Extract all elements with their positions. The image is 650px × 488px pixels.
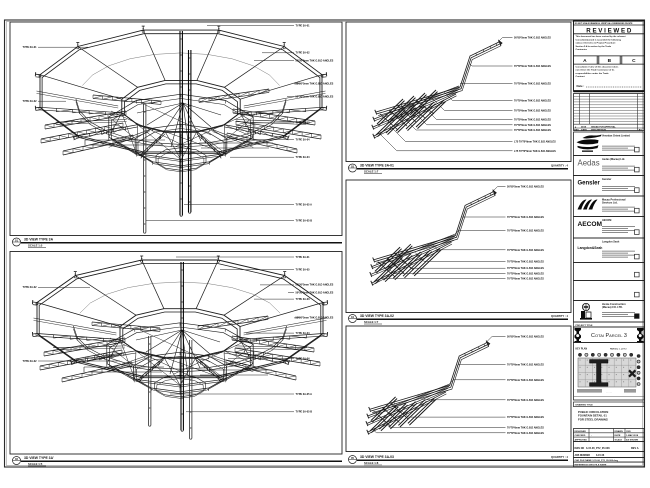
svg-text:50*50*5mm THK G.B.D ANGLES: 50*50*5mm THK G.B.D ANGLES bbox=[296, 95, 334, 98]
svg-text:R E V I E W E D: R E V I E W E D bbox=[586, 27, 632, 34]
svg-text:FOR STEEL DRAWING: FOR STEEL DRAWING bbox=[578, 417, 608, 421]
svg-text:TYPE 3A-01: TYPE 3A-01 bbox=[296, 256, 311, 259]
svg-text:KEY PLAN: KEY PLAN bbox=[576, 348, 588, 351]
svg-text:Section 5.4 for action by the: Section 5.4 for action by the Trade bbox=[576, 45, 612, 48]
svg-text:This document has been revised: This document has been revised by the re… bbox=[576, 35, 626, 38]
svg-text:70*70*6mm THK G.B.D ANGLES: 70*70*6mm THK G.B.D ANGLES bbox=[507, 399, 544, 402]
svg-text:BY: BY bbox=[639, 130, 643, 132]
svg-text:APPROVED: APPROVED bbox=[575, 438, 588, 441]
svg-text:TYPE 3A-04: TYPE 3A-04 bbox=[296, 138, 311, 141]
svg-text:Langdon Seah: Langdon Seah bbox=[602, 241, 620, 244]
svg-text:Contractor.: Contractor. bbox=[576, 48, 588, 51]
svg-text:Consultant review of this docu: Consultant review of this document does bbox=[576, 66, 620, 69]
svg-text:status referred to in Project: status referred to in Project Procedure bbox=[576, 42, 617, 45]
svg-text:50*50*5mm THK G.B.D ANGLES: 50*50*5mm THK G.B.D ANGLES bbox=[296, 284, 334, 287]
svg-text:3D VIEW TYPE 3A-02: 3D VIEW TYPE 3A-02 bbox=[360, 314, 394, 318]
svg-text:03: 03 bbox=[351, 164, 354, 168]
svg-text:50*50*5mm THK G.B.D ANGLES: 50*50*5mm THK G.B.D ANGLES bbox=[296, 83, 334, 86]
svg-text:04: 04 bbox=[351, 315, 354, 319]
svg-text:70*70*6mm THK G.B.D ANGLES: 70*70*6mm THK G.B.D ANGLES bbox=[507, 216, 544, 219]
svg-text:TYPE 3A-05: TYPE 3A-05 bbox=[296, 269, 311, 272]
svg-text:CHECKED: CHECKED bbox=[575, 435, 586, 437]
svg-text:50*50*5mm THK G.B.D ANGLES: 50*50*5mm THK G.B.D ANGLES bbox=[507, 335, 544, 338]
svg-text:01: 01 bbox=[15, 238, 18, 242]
svg-text:1-MAY-2018: 1-MAY-2018 bbox=[626, 434, 639, 437]
svg-text:Services Ltd.: Services Ltd. bbox=[602, 202, 618, 205]
svg-text:(Macau) CO. LTD.: (Macau) CO. LTD. bbox=[602, 306, 623, 309]
svg-text:3D VIEW TYPE 3A-03: 3D VIEW TYPE 3A-03 bbox=[360, 455, 394, 459]
svg-text:not relieve the Trade Contract: not relieve the Trade Contractor of its bbox=[576, 69, 616, 72]
svg-text:REFERENCE DWG FILE NAME: REFERENCE DWG FILE NAME bbox=[575, 464, 607, 467]
svg-text:C: C bbox=[632, 58, 636, 64]
svg-text:Langdon&Seah: Langdon&Seah bbox=[578, 246, 603, 250]
svg-text:70*70*6mm THK G.B.D ANGLES: 70*70*6mm THK G.B.D ANGLES bbox=[514, 129, 551, 132]
svg-text:50*50*5mm THK G.B.D ANGLES: 50*50*5mm THK G.B.D ANGLES bbox=[296, 60, 334, 63]
svg-text:QUANTITY : 4: QUANTITY : 4 bbox=[551, 455, 569, 459]
svg-text:. . . . .: . . . . . bbox=[606, 391, 611, 393]
svg-text:05: 05 bbox=[351, 456, 354, 460]
svg-text:SCALE: SCALE bbox=[615, 438, 623, 441]
svg-text:L75 70*70*6mm THK G.B.D ANGLES: L75 70*70*6mm THK G.B.D ANGLES bbox=[514, 140, 556, 143]
svg-text:70*70*6mm THK G.B.D ANGLES: 70*70*6mm THK G.B.D ANGLES bbox=[507, 267, 544, 270]
svg-text:TYPE 3A-01: TYPE 3A-01 bbox=[296, 24, 311, 27]
svg-text:PARCEL 1, LOT 2: PARCEL 1, LOT 2 bbox=[610, 348, 627, 351]
svg-text:3-15-06: 3-15-06 bbox=[596, 454, 605, 457]
svg-text:70*70*6mm THK G.B.D ANGLES: 70*70*6mm THK G.B.D ANGLES bbox=[507, 278, 544, 281]
svg-text:70*70*6mm THK G.B.D ANGLES: 70*70*6mm THK G.B.D ANGLES bbox=[514, 65, 551, 68]
svg-text:70*70*6mm THK G.B.D ANGLES: 70*70*6mm THK G.B.D ANGLES bbox=[507, 416, 544, 419]
svg-text:B: B bbox=[608, 58, 612, 64]
svg-text:Contract.: Contract. bbox=[576, 75, 586, 78]
svg-text:SCALE 1:8: SCALE 1:8 bbox=[364, 461, 379, 465]
svg-text:TYPE 3A-05 B: TYPE 3A-05 B bbox=[296, 411, 313, 414]
svg-text:70*70*6mm THK G.B.D ANGLES: 70*70*6mm THK G.B.D ANGLES bbox=[507, 379, 544, 382]
svg-text:DRAWING TITLE: DRAWING TITLE bbox=[576, 404, 594, 407]
svg-text:70*70*6mm THK G.B.D ANGLES: 70*70*6mm THK G.B.D ANGLES bbox=[507, 427, 544, 430]
svg-text:TYPE 3A-05 A: TYPE 3A-05 A bbox=[296, 393, 313, 396]
svg-text:3D VIEW TYPE 3A: 3D VIEW TYPE 3A bbox=[24, 238, 54, 242]
svg-text:70*70*6mm THK G.B.D ANGLES: 70*70*6mm THK G.B.D ANGLES bbox=[514, 109, 551, 112]
svg-text:TYPE 3A-01: TYPE 3A-01 bbox=[22, 46, 37, 49]
svg-text:JOB NUMBER: JOB NUMBER bbox=[575, 455, 591, 457]
svg-text:DRAWN: DRAWN bbox=[615, 430, 624, 433]
svg-text:TYPE 3A-05 B: TYPE 3A-05 B bbox=[296, 220, 313, 223]
svg-text:50*50*5mm THK G.B.D ANGLES: 50*50*5mm THK G.B.D ANGLES bbox=[507, 185, 544, 188]
svg-text:TYPE 3A-02: TYPE 3A-02 bbox=[296, 52, 311, 55]
svg-text:DATE: DATE bbox=[615, 434, 621, 437]
svg-text:SCALE 1:7: SCALE 1:7 bbox=[364, 170, 379, 174]
svg-text:DATE: DATE bbox=[581, 129, 587, 132]
svg-text:Venetian Orient Limited: Venetian Orient Limited bbox=[602, 135, 630, 138]
svg-text:Gensler: Gensler bbox=[602, 178, 611, 181]
svg-text:QUANTITY : 4: QUANTITY : 4 bbox=[551, 314, 569, 318]
svg-text:AS SHOWN: AS SHOWN bbox=[626, 438, 638, 441]
svg-text:70*70*6mm THK G.B.D ANGLES: 70*70*6mm THK G.B.D ANGLES bbox=[507, 249, 544, 252]
svg-text:3D VIEW TYPE 3A': 3D VIEW TYPE 3A' bbox=[24, 456, 54, 460]
svg-text:70*70*6mm THK G.B.D ANGLES: 70*70*6mm THK G.B.D ANGLES bbox=[507, 260, 544, 263]
svg-text:TYPE 3A-04: TYPE 3A-04 bbox=[296, 332, 311, 335]
svg-text:Aedas (Macau) Ltd.: Aedas (Macau) Ltd. bbox=[602, 158, 625, 161]
svg-text:QUANTITY : 4: QUANTITY : 4 bbox=[551, 164, 569, 168]
svg-text:DESCRIPTION: DESCRIPTION bbox=[591, 130, 606, 132]
svg-text:3D VIEW TYPE 3A-01: 3D VIEW TYPE 3A-01 bbox=[360, 164, 394, 168]
svg-text:REV A: REV A bbox=[631, 447, 639, 450]
svg-text:SCALE 1:5: SCALE 1:5 bbox=[28, 462, 43, 466]
svg-text:3-15-06_P72_05-006: 3-15-06_P72_05-006 bbox=[586, 447, 610, 450]
svg-text:70*70*6mm THK G.B.D ANGLES: 70*70*6mm THK G.B.D ANGLES bbox=[514, 119, 551, 122]
svg-text:TYPE 3A-02: TYPE 3A-02 bbox=[22, 100, 37, 103]
svg-text:DESIGNED: DESIGNED bbox=[575, 431, 587, 433]
svg-text:02: 02 bbox=[15, 457, 18, 461]
svg-text:TYPE 3A-05 A: TYPE 3A-05 A bbox=[296, 203, 313, 206]
svg-text:TYPE 3A-03: TYPE 3A-03 bbox=[296, 298, 311, 301]
svg-text:50*50*5mm THK G.B.D ANGLES: 50*50*5mm THK G.B.D ANGLES bbox=[296, 291, 334, 294]
svg-text:70*70*6mm THK G.B.D ANGLES: 70*70*6mm THK G.B.D ANGLES bbox=[507, 273, 544, 276]
svg-text:70*70*6mm THK G.B.D ANGLES: 70*70*6mm THK G.B.D ANGLES bbox=[514, 124, 551, 127]
svg-text:TYPE 3A-03: TYPE 3A-03 bbox=[296, 122, 311, 125]
svg-text:50*50*5mm THK G.B.D ANGLES: 50*50*5mm THK G.B.D ANGLES bbox=[296, 317, 334, 320]
svg-text:70*70*6mm THK G.B.D ANGLES: 70*70*6mm THK G.B.D ANGLES bbox=[507, 432, 544, 435]
svg-text:TYPE 3A-02: TYPE 3A-02 bbox=[22, 360, 37, 363]
svg-text:COTAI PARCEL 3: COTAI PARCEL 3 bbox=[591, 333, 627, 339]
svg-text:70*70*6mm THK G.B.D ANGLES: 70*70*6mm THK G.B.D ANGLES bbox=[507, 363, 544, 366]
svg-text:REV: REV bbox=[574, 130, 579, 132]
svg-text:L75 70*70*6mm THK G.B.D ANGLES: L75 70*70*6mm THK G.B.D ANGLES bbox=[514, 150, 556, 153]
svg-text:Consultant(s) and is accorded: Consultant(s) and is accorded the follow… bbox=[576, 38, 622, 41]
svg-text:AECOM: AECOM bbox=[602, 219, 611, 222]
svg-text:AECOM: AECOM bbox=[578, 221, 603, 228]
svg-text:Date :: Date : bbox=[577, 84, 585, 88]
svg-text:SCALE 1:7: SCALE 1:7 bbox=[364, 320, 379, 324]
svg-text:DO NOT SCALE DRAWINGS. VERIFY: DO NOT SCALE DRAWINGS. VERIFY ALL DIMENS… bbox=[575, 22, 633, 25]
svg-text:50*50*5mm THK G.B.D ANGLES: 50*50*5mm THK G.B.D ANGLES bbox=[514, 36, 551, 39]
svg-text:CKD: CKD bbox=[626, 431, 631, 433]
svg-text:responsibilities under the Tra: responsibilities under the Trade bbox=[576, 72, 610, 75]
svg-text:TYPE 3A-04: TYPE 3A-04 bbox=[296, 357, 311, 360]
svg-text:Gensler: Gensler bbox=[578, 181, 601, 187]
svg-text:70*70*6mm THK G.B.D ANGLES: 70*70*6mm THK G.B.D ANGLES bbox=[514, 82, 551, 85]
svg-text:70*70*6mm THK G.B.D ANGLES: 70*70*6mm THK G.B.D ANGLES bbox=[507, 230, 544, 233]
svg-text:SCALE 1:5: SCALE 1:5 bbox=[28, 244, 43, 248]
svg-text:TYPE 3A-04: TYPE 3A-04 bbox=[296, 156, 311, 159]
svg-text:CAD FILE NAME 3-15-06_P72_05-0: CAD FILE NAME 3-15-06_P72_05-006.dwg bbox=[575, 459, 619, 462]
svg-text:Aedas: Aedas bbox=[578, 159, 600, 168]
svg-text:TYPE 3A-02: TYPE 3A-02 bbox=[22, 286, 37, 289]
svg-text:70*70*6mm THK G.B.D ANGLES: 70*70*6mm THK G.B.D ANGLES bbox=[514, 100, 551, 103]
svg-text:A: A bbox=[583, 58, 587, 64]
svg-text:DWG NO: DWG NO bbox=[575, 448, 585, 450]
